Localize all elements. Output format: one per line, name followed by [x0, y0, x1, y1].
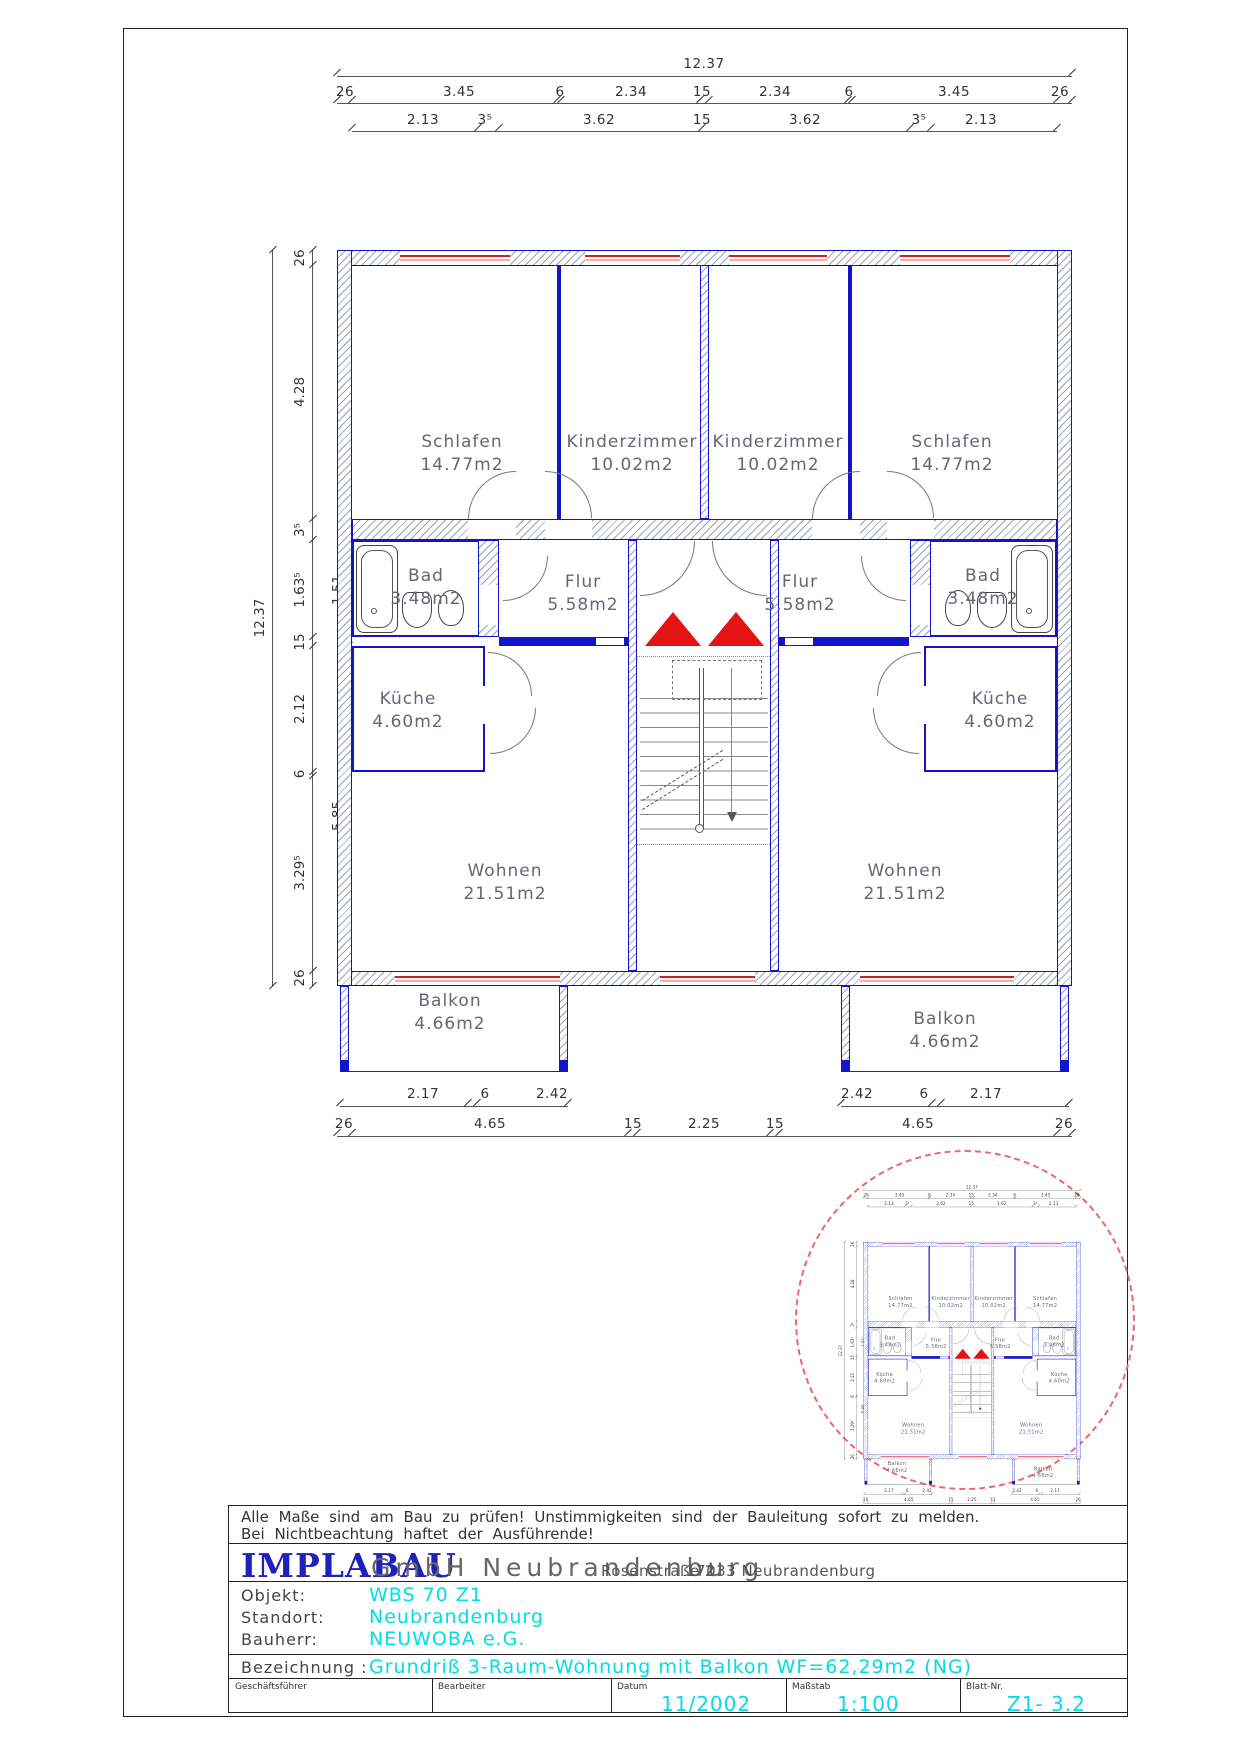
exterior-wall-right: [1076, 1242, 1080, 1459]
room-area: 4.60m2: [964, 712, 1035, 732]
dim-line-top-row2: [337, 103, 1072, 104]
drawing-page: { "dims": { "top_overall": "12.37", "top…: [0, 0, 1240, 1754]
door-arc: [1004, 1307, 1018, 1321]
dim-label: 6: [906, 1489, 909, 1494]
dim-label: 2.34: [615, 84, 647, 100]
entry-door-arc: [640, 541, 695, 596]
stair-rail-end: [969, 1411, 972, 1414]
room-area: 10.02m2: [590, 455, 673, 475]
balcony-pillar: [1077, 1481, 1080, 1485]
room-name: Schlafen: [1033, 1296, 1057, 1302]
dim-label: 3⁵: [911, 112, 926, 128]
door-opening: [1033, 1341, 1039, 1353]
dim-label: 3.45: [938, 84, 970, 100]
dim-label: 3⁵: [477, 112, 492, 128]
door-arc: [1018, 1332, 1031, 1345]
room-label-kinderzimmer-right: Kinderzimmer10.02m2: [974, 1295, 1013, 1309]
door-opening: [887, 520, 934, 539]
dim-label: 26: [335, 1116, 353, 1132]
dim-label: 2.12: [292, 694, 308, 724]
door-arc: [913, 1332, 926, 1345]
massstab-value: 1:100: [837, 1692, 900, 1716]
dim-tick: [855, 1458, 857, 1460]
room-area: 21.51m2: [863, 884, 946, 904]
window: [400, 251, 510, 265]
dim-label: 3.45: [1041, 1193, 1050, 1198]
dim-tick: [1079, 1188, 1081, 1190]
stair-rail: [970, 1365, 971, 1412]
dim-tick: [1078, 1492, 1080, 1494]
dim-tick: [309, 642, 317, 650]
room-area: 21.51m2: [463, 884, 546, 904]
window: [882, 1242, 914, 1246]
red-triangle-marker: [645, 612, 701, 646]
dim-tick: [309, 246, 317, 254]
room-area: 3.48m2: [947, 589, 1018, 609]
dim-label: 15: [948, 1497, 953, 1502]
room-label-flur-left: Flur5.58m2: [547, 571, 618, 617]
door-arc: [1026, 1307, 1040, 1321]
dim-label: 4.65: [904, 1497, 913, 1502]
dim-label: 2.13: [1049, 1201, 1058, 1206]
dim-label: 3⁵: [905, 1201, 909, 1206]
room-label-balkon-right: Balkon4.66m2: [1033, 1466, 1054, 1480]
balcony-pillar: [559, 1060, 568, 1072]
room-label-balkon-left: Balkon4.66m2: [886, 1460, 907, 1474]
door-opening: [479, 585, 498, 625]
room-area: 14.77m2: [420, 455, 503, 475]
dim-tick: [844, 1241, 846, 1243]
dim-label: 2.34: [988, 1193, 997, 1198]
dim-tick: [336, 1099, 344, 1107]
room-name: Wohnen: [1020, 1422, 1042, 1428]
room-label-bad-left: Bad3.48m2: [390, 565, 461, 611]
room-area: 14.77m2: [888, 1302, 912, 1308]
red-triangle-marker: [973, 1349, 990, 1359]
door-opening: [925, 1322, 939, 1328]
room-area: 5.58m2: [764, 595, 835, 615]
room-area: 14.77m2: [1033, 1302, 1057, 1308]
company-city: 17033 Neubrandenburg: [686, 1562, 876, 1580]
dim-tick: [855, 1241, 857, 1243]
dim-tick: [928, 1099, 936, 1107]
dim-label: 2.25: [688, 1116, 720, 1132]
dim-label: 15: [766, 1116, 784, 1132]
dim-line-left-chain: [312, 250, 313, 986]
door-arc: [861, 556, 906, 601]
room-area: 3.48m2: [879, 1342, 900, 1348]
dim-tick: [927, 124, 935, 132]
room-label-flur-right: Flur5.58m2: [764, 571, 835, 617]
room-label-balkon-left: Balkon4.66m2: [414, 990, 485, 1036]
room-name: Schlafen: [911, 432, 992, 452]
entry-door-arc: [712, 541, 767, 596]
dim-tick: [309, 261, 317, 269]
dim-label: 2.34: [759, 84, 791, 100]
door-opening: [902, 1322, 916, 1328]
massstab-label: Maßstab: [792, 1682, 830, 1692]
door-opening: [545, 520, 592, 539]
dim-label: 15: [969, 1193, 974, 1198]
dim-label: 2.13: [407, 112, 439, 128]
balcony-pillar: [929, 1481, 932, 1485]
door-arc: [1023, 1361, 1036, 1374]
room-label-kueche-right: Küche4.60m2: [1049, 1371, 1070, 1385]
room-label-balkon-right: Balkon4.66m2: [909, 1008, 980, 1054]
room-area: 4.60m2: [874, 1378, 895, 1384]
room-area: 21.51m2: [1019, 1429, 1043, 1435]
dim-label: 2.42: [536, 1086, 568, 1102]
room-name: Balkon: [888, 1461, 907, 1467]
interior-wall-rooms: [352, 519, 1057, 540]
dim-label: 2.13: [965, 112, 997, 128]
standort-label: Standort:: [241, 1608, 325, 1627]
dim-tick: [910, 1205, 912, 1207]
bathtub-drain: [371, 608, 377, 614]
dim-tick: [844, 1458, 846, 1460]
dim-line-balcony-right: [841, 1106, 1069, 1107]
balcony-pillar: [340, 1060, 349, 1072]
door-opening: [479, 686, 487, 724]
title-block-divider: [229, 1543, 1127, 1544]
window: [585, 251, 680, 265]
dim-label: 3⁵: [292, 523, 308, 537]
room-area: 4.66m2: [1033, 1473, 1054, 1479]
room-name: Küche: [876, 1371, 893, 1377]
room-area: 10.02m2: [982, 1302, 1006, 1308]
dim-line-left-overall: [272, 250, 273, 986]
dim-tick: [1079, 1196, 1081, 1198]
dim-label: 26: [863, 1497, 868, 1502]
objekt-label: Objekt:: [241, 1586, 306, 1605]
bathtub-drain: [874, 1348, 876, 1350]
stair-landing-dashed: [672, 660, 762, 700]
balcony-pillar: [1012, 1481, 1015, 1485]
window-balcony-door: [860, 972, 1014, 985]
dim-label: 26: [1051, 84, 1069, 100]
dim-label: 1.63⁵: [850, 1337, 855, 1347]
room-name: Flur: [782, 572, 818, 592]
room-label-wohnen-right: Wohnen21.51m2: [863, 860, 946, 906]
door-arc: [468, 471, 516, 519]
door-arc: [877, 652, 921, 696]
dim-label: 4.28: [292, 377, 308, 407]
dim-label: 1.63⁵: [292, 572, 308, 607]
entry-door-arc: [974, 1328, 990, 1344]
bezeichnung-label: Bezeichnung :: [241, 1658, 368, 1677]
door-arc: [909, 1377, 923, 1391]
door-opening: [996, 1356, 1004, 1358]
room-label-kueche-right: Küche4.60m2: [964, 688, 1035, 734]
title-block-divider: [229, 1654, 1127, 1655]
door-opening: [1036, 1371, 1038, 1382]
dim-label: 4.65: [902, 1116, 934, 1132]
dim-tick: [309, 536, 317, 544]
stair-direction-line: [731, 668, 732, 813]
bezeichnung-value: Grundriß 3-Raum-Wohnung mit Balkon WF=62…: [369, 1656, 972, 1678]
dim-label: 2.34: [946, 1193, 955, 1198]
window: [729, 251, 827, 265]
dim-label: 6: [555, 84, 564, 100]
door-arc: [1022, 1377, 1036, 1391]
door-opening: [911, 585, 930, 625]
dim-label: 6: [919, 1086, 928, 1102]
dim-label: 12.37: [966, 1185, 978, 1190]
dim-label: 26: [863, 1193, 868, 1198]
balcony-pillar: [865, 1481, 868, 1485]
dim-label: 6: [850, 1395, 855, 1398]
dim-tick: [855, 1357, 857, 1359]
exterior-wall-right: [1057, 250, 1072, 986]
dim-label: 2.17: [407, 1086, 439, 1102]
balcony-edge: [841, 1071, 1069, 1072]
room-name: Balkon: [913, 1009, 976, 1029]
dim-tick: [309, 515, 317, 523]
room-area: 5.58m2: [990, 1344, 1011, 1350]
window-stairwell: [660, 972, 755, 985]
dim-tick: [333, 69, 341, 77]
room-label-bad-left: Bad3.48m2: [879, 1335, 900, 1349]
room-label-flur-left: Flur5.58m2: [926, 1337, 947, 1351]
dim-label: 2.17: [970, 1086, 1002, 1102]
room-area: 4.60m2: [1049, 1378, 1070, 1384]
room-area: 4.60m2: [372, 712, 443, 732]
title-block-divider: [960, 1678, 961, 1712]
dim-label: 12.37: [252, 599, 268, 638]
dim-label: 6: [844, 84, 853, 100]
dim-tick: [1041, 1492, 1043, 1494]
room-name: Wohnen: [467, 861, 542, 881]
room-name: Bad: [408, 566, 444, 586]
dim-tick: [863, 1188, 865, 1190]
dim-tick: [309, 982, 317, 990]
datum-label: Datum: [617, 1682, 647, 1692]
room-label-kinderzimmer-right: Kinderzimmer10.02m2: [712, 431, 843, 477]
window: [1030, 1242, 1062, 1246]
geschaeftsfuehrer-label: Geschäftsführer: [235, 1682, 307, 1692]
dim-tick: [1068, 69, 1076, 77]
door-opening: [1004, 1322, 1018, 1328]
dim-line-top-row3: [352, 131, 1057, 132]
room-name: Bad: [1049, 1335, 1060, 1341]
stairwell-wall-left: [628, 540, 637, 971]
room-label-flur-right: Flur5.58m2: [990, 1337, 1011, 1351]
dim-tick: [464, 1099, 472, 1107]
stair-direction-arrow: [727, 812, 737, 822]
stair-treads: [640, 698, 768, 830]
room-label-kinderzimmer-left: Kinderzimmer10.02m2: [566, 431, 697, 477]
stair-landing-dashed: [962, 1363, 989, 1375]
dim-tick: [867, 1205, 869, 1207]
door-opening: [785, 638, 813, 645]
dim-label: 2.42: [841, 1086, 873, 1102]
blattnr-label: Blatt-Nr.: [966, 1682, 1003, 1692]
exterior-wall-left: [337, 250, 352, 986]
dim-tick: [1075, 1205, 1077, 1207]
window-balcony-door: [881, 1455, 930, 1459]
room-label-schlafen-right: Schlafen14.77m2: [910, 431, 993, 477]
title-block-divider: [229, 1678, 1127, 1679]
warning-line-1: Alle Maße sind am Bau zu prüfen! Unstimm…: [241, 1508, 979, 1526]
dim-label: 15: [693, 84, 711, 100]
dim-label: 26: [292, 249, 308, 266]
room-name: Kinderzimmer: [931, 1296, 970, 1302]
dim-label: 2.42: [922, 1489, 931, 1494]
dim-label: 4.28: [850, 1279, 855, 1288]
door-arc: [490, 708, 536, 754]
dim-label: 2.13: [884, 1201, 893, 1206]
dim-tick: [855, 1245, 857, 1247]
room-name: Flur: [995, 1337, 1006, 1343]
room-area: 3.48m2: [1044, 1342, 1065, 1348]
room-label-kueche-left: Küche4.60m2: [372, 688, 443, 734]
objekt-value: WBS 70 Z1: [369, 1584, 483, 1606]
dim-label: 6: [1035, 1489, 1038, 1494]
dim-label: 26: [1074, 1193, 1079, 1198]
dim-tick: [1038, 1205, 1040, 1207]
dim-label: 15: [850, 1355, 855, 1360]
room-area: 10.02m2: [938, 1302, 962, 1308]
dim-label: 2.12: [850, 1373, 855, 1382]
dim-label: 6: [928, 1193, 931, 1198]
dim-tick: [269, 982, 277, 990]
room-label-schlafen-right: Schlafen14.77m2: [1033, 1295, 1057, 1309]
room-label-schlafen-left: Schlafen14.77m2: [888, 1295, 912, 1309]
door-opening: [940, 1356, 948, 1358]
dim-label: 3.62: [583, 112, 615, 128]
door-arc: [545, 471, 592, 518]
dim-label: 12.37: [839, 1345, 844, 1356]
window: [979, 1242, 1008, 1246]
door-arc: [873, 708, 919, 754]
room-label-wohnen-left: Wohnen21.51m2: [901, 1422, 925, 1436]
dim-label: 3.29⁵: [292, 855, 308, 890]
stair-dotted-line: [637, 656, 770, 657]
stair-rail: [699, 668, 704, 828]
door-arc: [925, 1307, 939, 1321]
dim-label: 26: [850, 1242, 855, 1247]
door-opening: [596, 638, 624, 645]
room-label-bad-right: Bad3.48m2: [947, 565, 1018, 611]
room-area: 21.51m2: [901, 1429, 925, 1435]
dim-tick: [855, 1320, 857, 1322]
standort-value: Neubrandenburg: [369, 1606, 544, 1628]
dim-label: 26: [850, 1454, 855, 1459]
dim-label: 3.29⁵: [850, 1421, 855, 1431]
room-name: Bad: [965, 566, 1001, 586]
bearbeiter-label: Bearbeiter: [438, 1682, 485, 1692]
dim-label: 3.62: [997, 1201, 1006, 1206]
room-name: Schlafen: [421, 432, 502, 452]
dim-label: 15: [624, 1116, 642, 1132]
room-name: Wohnen: [902, 1422, 924, 1428]
window-balcony-door: [395, 972, 560, 985]
door-opening: [468, 520, 516, 539]
room-area: 4.66m2: [886, 1467, 907, 1473]
dim-label: 26: [292, 969, 308, 986]
room-area: 3.48m2: [390, 589, 461, 609]
dim-label: 4.65: [1030, 1497, 1039, 1502]
room-name: Küche: [1051, 1371, 1068, 1377]
dim-tick: [855, 1326, 857, 1328]
door-opening: [906, 1341, 912, 1353]
bauherr-label: Bauherr:: [241, 1630, 318, 1649]
room-name: Küche: [380, 689, 437, 709]
title-block-divider: [786, 1678, 787, 1712]
dim-line-balcony-left: [340, 1106, 568, 1107]
dim-label: 15: [693, 112, 711, 128]
title-block-divider: [432, 1678, 433, 1712]
dim-label: 15: [969, 1201, 974, 1206]
dim-label: 26: [1055, 1116, 1073, 1132]
room-area: 14.77m2: [910, 455, 993, 475]
red-triangle-marker: [955, 1349, 972, 1359]
mini-plan: 12.37 26 3.45 6 2.34 15 2.34 6 3.45 26 2…: [838, 1180, 1103, 1525]
room-name: Bad: [885, 1335, 896, 1341]
balcony-pillar: [841, 1060, 850, 1072]
room-name: Kinderzimmer: [712, 432, 843, 452]
door-arc: [887, 471, 934, 518]
window-balcony-door: [1018, 1455, 1063, 1459]
window-stairwell: [959, 1455, 987, 1459]
dim-tick: [855, 1453, 857, 1455]
dim-label: 3.45: [443, 84, 475, 100]
dim-label: 2.17: [1050, 1489, 1059, 1494]
dim-tick: [1068, 96, 1076, 104]
room-name: Kinderzimmer: [566, 432, 697, 452]
dim-label: 3⁵: [850, 1322, 855, 1326]
dim-label: 2.25: [967, 1497, 976, 1502]
dim-tick: [495, 124, 503, 132]
window: [937, 1242, 965, 1246]
title-block-divider: [611, 1678, 612, 1712]
door-opening: [922, 686, 930, 724]
party-wall-top: [700, 265, 709, 519]
dim-label: 2.17: [884, 1489, 893, 1494]
warning-line-2: Bei Nichtbeachtung haftet der Ausführend…: [241, 1525, 594, 1543]
balcony-edge: [340, 1071, 568, 1072]
room-label-wohnen-right: Wohnen21.51m2: [1019, 1422, 1043, 1436]
door-arc: [503, 556, 548, 601]
dim-label: 12.37: [683, 56, 724, 72]
bauherr-value: NEUWOBA e.G.: [369, 1628, 525, 1650]
door-arc: [902, 1307, 916, 1321]
plan-group: 12.37 26 3.45 6 2.34 15 2.34 6 3.45 26 2…: [838, 1180, 1087, 1509]
room-area: 5.58m2: [547, 595, 618, 615]
party-wall-top: [971, 1246, 974, 1321]
dim-tick: [863, 1492, 865, 1494]
dim-label: 6: [480, 1086, 489, 1102]
plan-group: 12.37 26 3.45 6 2.34 15 2.34 6 3.45 26 2…: [250, 40, 1095, 1155]
balcony-pillar: [1060, 1060, 1069, 1072]
dim-label: 6: [1013, 1193, 1016, 1198]
dim-label: 2.42: [1012, 1489, 1021, 1494]
stairwell-wall-left: [950, 1328, 953, 1455]
dim-label: 26: [1075, 1497, 1080, 1502]
room-area: 5.58m2: [926, 1344, 947, 1350]
room-name: Flur: [565, 572, 601, 592]
dim-tick: [309, 967, 317, 975]
stair-rail-end: [695, 824, 704, 833]
dim-tick: [855, 1396, 857, 1398]
room-label-wohnen-left: Wohnen21.51m2: [463, 860, 546, 906]
dim-label: 3.45: [895, 1193, 904, 1198]
room-name: Schlafen: [889, 1296, 913, 1302]
room-label-schlafen-left: Schlafen14.77m2: [420, 431, 503, 477]
dim-label: 26: [336, 84, 354, 100]
room-label-kueche-left: Küche4.60m2: [874, 1371, 895, 1385]
dim-tick: [937, 1099, 945, 1107]
